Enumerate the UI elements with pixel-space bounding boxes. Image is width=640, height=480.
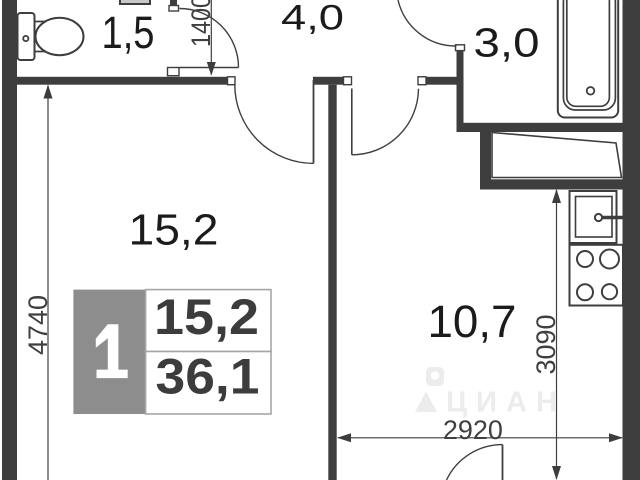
svg-text:36,1: 36,1 [156,349,260,405]
svg-text:1,5: 1,5 [102,7,155,58]
svg-text:4740: 4740 [23,295,53,355]
svg-text:1400: 1400 [186,0,216,47]
svg-text:ЦИАН: ЦИАН [446,387,566,419]
svg-text:2920: 2920 [443,415,503,445]
svg-text:4,0: 4,0 [281,0,344,38]
svg-text:3090: 3090 [531,314,561,374]
svg-text:15,2: 15,2 [129,206,219,255]
svg-text:10,7: 10,7 [428,296,517,347]
svg-text:3,0: 3,0 [474,20,540,66]
svg-text:15,2: 15,2 [154,289,259,345]
